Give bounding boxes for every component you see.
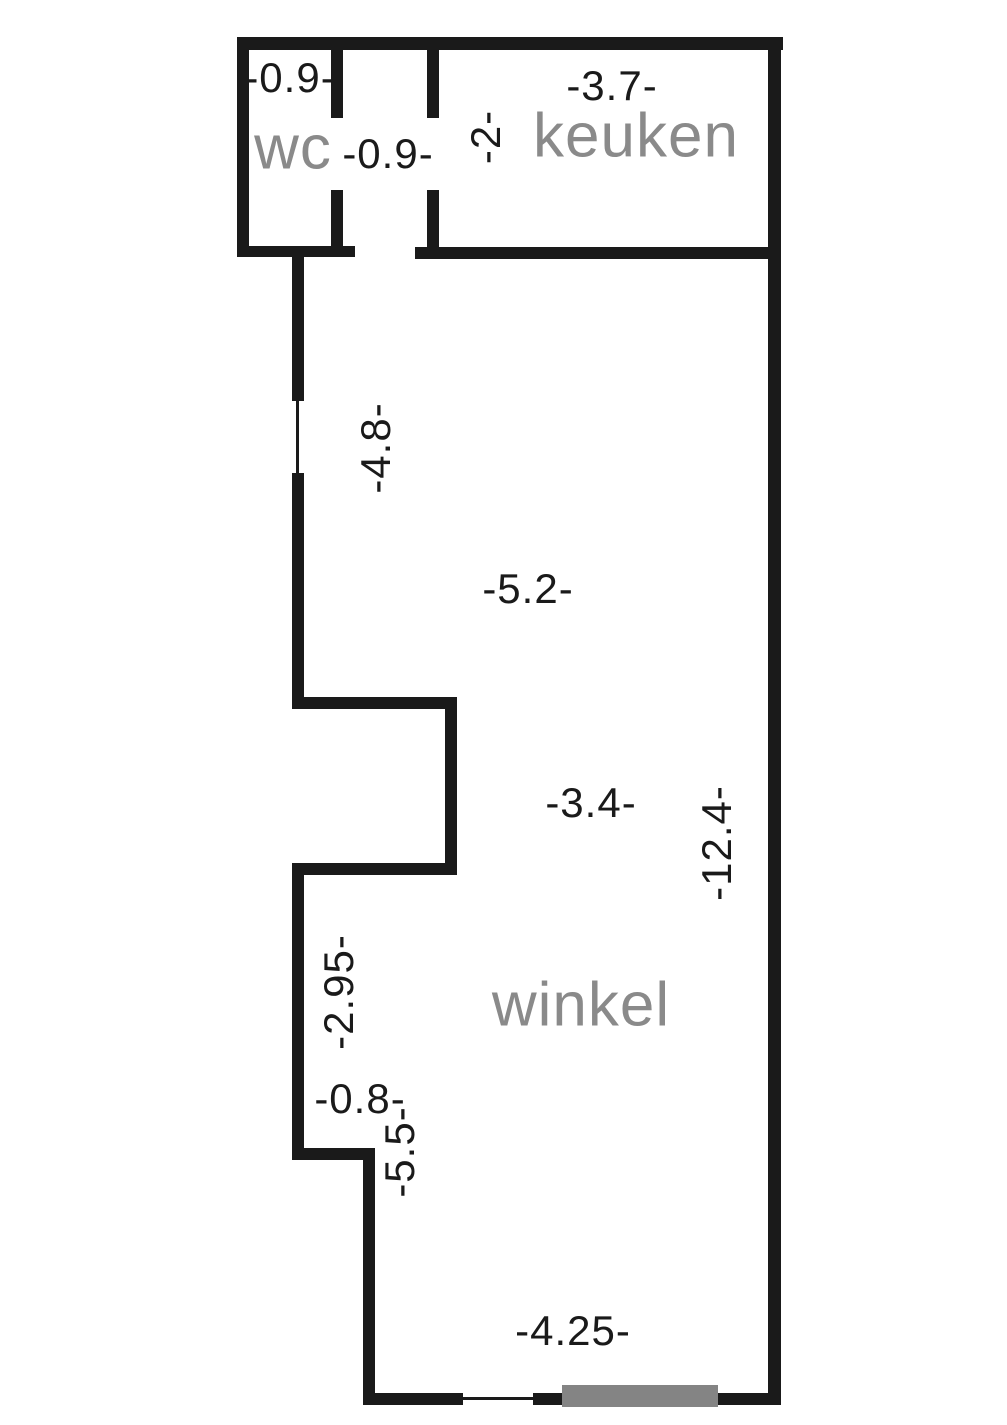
- wall-right: [768, 37, 781, 1405]
- dim-left-mid-height: -2.95-: [315, 934, 363, 1050]
- wall-top: [237, 37, 783, 50]
- wall-notch-bottom: [292, 863, 457, 875]
- wall-notch-top: [292, 697, 457, 709]
- dim-wc-width: -0.9-: [244, 54, 335, 102]
- floorplan-canvas: wc keuken winkel -0.9- -0.9- -2- -3.7- -…: [0, 0, 1007, 1425]
- room-label-keuken: keuken: [533, 101, 739, 172]
- window-line-bottom: [463, 1397, 533, 1400]
- wall-notch-right: [445, 697, 457, 875]
- dim-shop-depth: -12.4-: [693, 785, 741, 901]
- entrance-door: [562, 1385, 718, 1407]
- wall-left-upper-2: [292, 473, 304, 705]
- wall-left-lower: [363, 1148, 375, 1405]
- wall-bottom-right-segment: [718, 1393, 781, 1405]
- dim-shop-upper-width: -5.2-: [482, 565, 573, 613]
- wall-keuken-bottom: [415, 247, 781, 259]
- wall-left-upper-1: [292, 246, 304, 401]
- dim-left-upper-height: -4.8-: [352, 402, 400, 493]
- dim-keuken-depth: -2-: [462, 110, 510, 164]
- wall-left-mid: [292, 863, 304, 1160]
- dim-left-bottom-height: -5.5-: [376, 1106, 424, 1197]
- dim-front-width: -4.25-: [515, 1307, 631, 1355]
- window-line-left: [296, 401, 299, 473]
- room-label-wc: wc: [254, 113, 332, 184]
- dim-hall-width: -0.9-: [342, 130, 433, 178]
- wall-keuken-left-upper: [427, 37, 439, 118]
- room-label-winkel: winkel: [492, 970, 670, 1041]
- wall-wc-right-lower: [331, 190, 343, 257]
- dim-shop-mid-width: -3.4-: [545, 779, 636, 827]
- wall-bottom-mid-segment: [533, 1393, 563, 1405]
- dim-keuken-width: -3.7-: [566, 62, 657, 110]
- wall-bottom-left-segment: [363, 1393, 463, 1405]
